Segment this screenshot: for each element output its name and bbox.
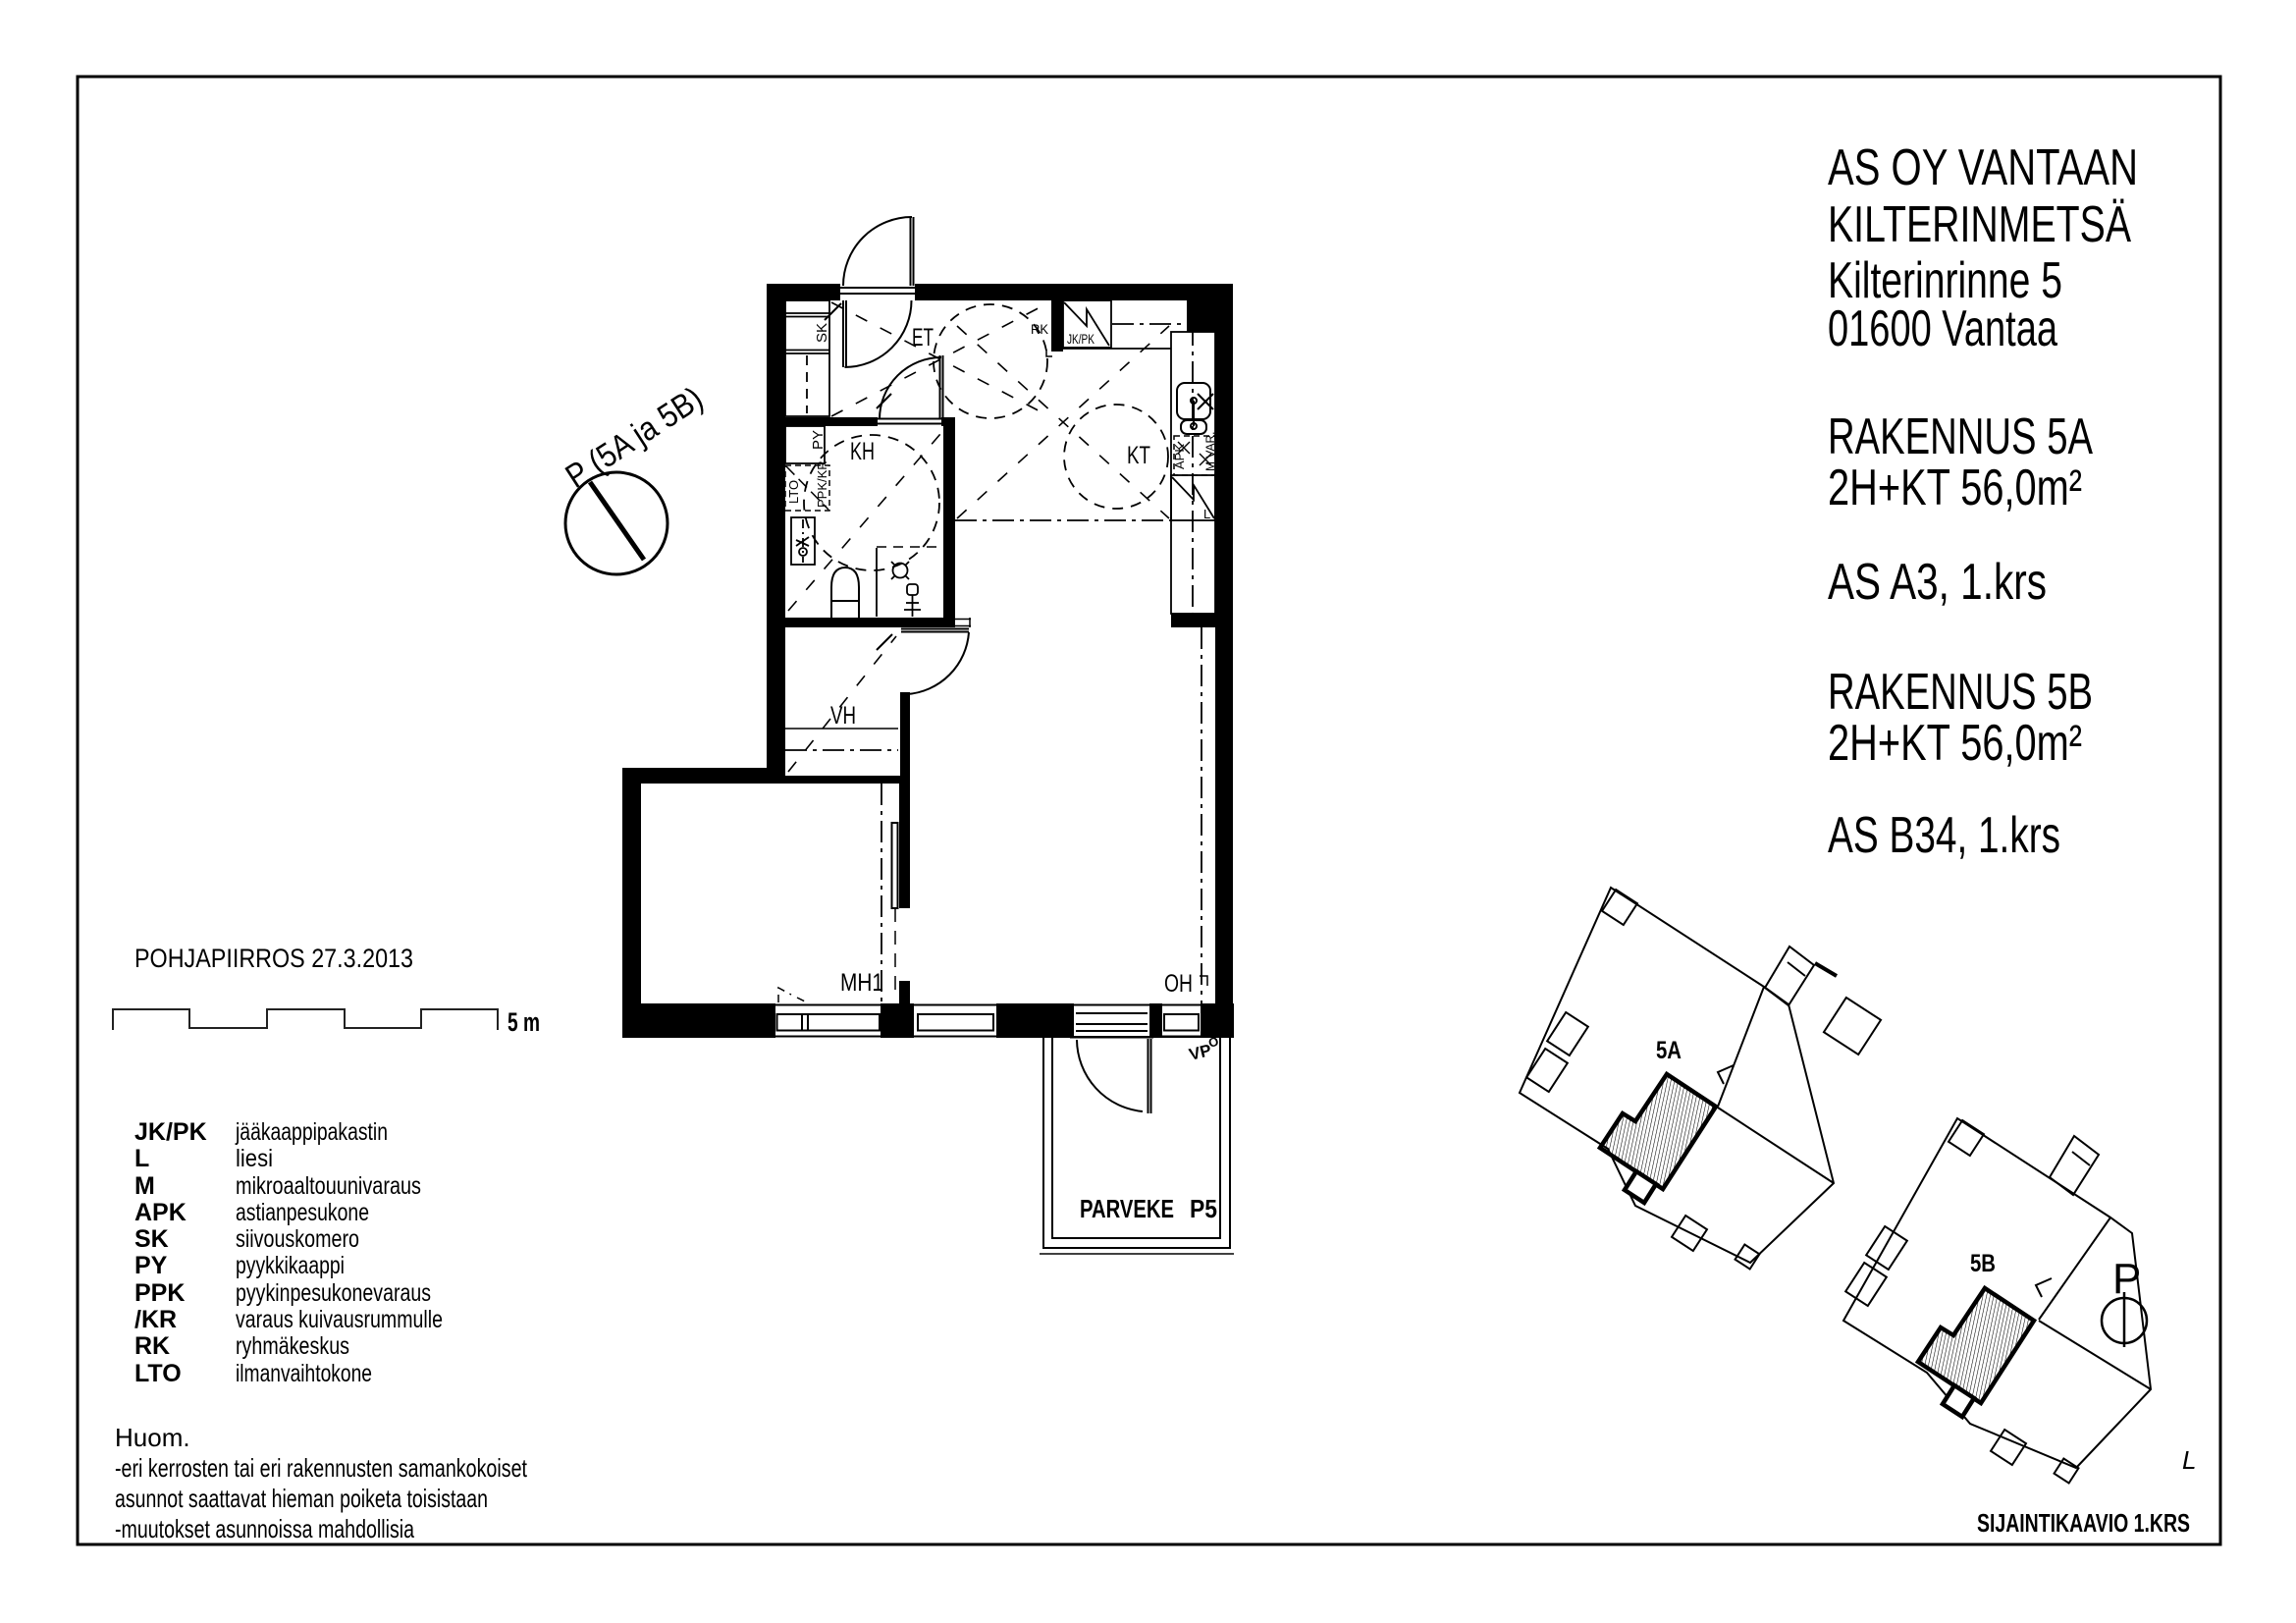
svg-text:RAKENNUS 5B: RAKENNUS 5B <box>1828 664 2093 721</box>
svg-text:VH: VH <box>830 702 856 730</box>
svg-text:-eri kerrosten tai eri rakennu: -eri kerrosten tai eri rakennusten saman… <box>115 1453 528 1483</box>
svg-text:5A: 5A <box>1656 1037 1682 1064</box>
svg-text:L: L <box>1203 507 1210 521</box>
svg-text:JK/PK: JK/PK <box>1067 331 1095 347</box>
svg-text:AS OY VANTAAN: AS OY VANTAAN <box>1828 139 2138 196</box>
svg-text:P (5A ja 5B): P (5A ja 5B) <box>560 380 710 496</box>
svg-text:LTO: LTO <box>134 1360 182 1387</box>
svg-text:asunnot saattavat hieman poike: asunnot saattavat hieman poiketa toisist… <box>115 1484 488 1513</box>
svg-text:5 m: 5 m <box>507 1007 540 1037</box>
svg-text:pyykinpesukonevaraus: pyykinpesukonevaraus <box>236 1279 431 1307</box>
svg-text:RAKENNUS 5A: RAKENNUS 5A <box>1828 408 2093 465</box>
svg-text:L: L <box>134 1145 149 1172</box>
svg-text:pyykkikaappi: pyykkikaappi <box>236 1252 345 1279</box>
svg-text:APK: APK <box>1172 444 1187 469</box>
svg-text:MH1: MH1 <box>840 969 883 997</box>
svg-text:ET: ET <box>912 324 934 352</box>
svg-text:liesi: liesi <box>236 1145 273 1172</box>
svg-text:M VAR.: M VAR. <box>1203 432 1217 471</box>
svg-text:-muutokset asunnoissa mahdolli: -muutokset asunnoissa mahdollisia <box>115 1514 414 1543</box>
svg-text:/KR: /KR <box>134 1306 177 1333</box>
svg-text:APK: APK <box>134 1199 187 1226</box>
svg-text:jääkaappipakastin: jääkaappipakastin <box>235 1118 388 1146</box>
svg-text:SK: SK <box>814 323 830 343</box>
svg-text:2H+KT 56,0m²: 2H+KT 56,0m² <box>1828 715 2082 772</box>
svg-text:siivouskomero: siivouskomero <box>236 1225 359 1253</box>
svg-text:PY: PY <box>134 1252 168 1279</box>
svg-text:KH: KH <box>850 438 875 465</box>
svg-text:PPK/KR: PPK/KR <box>815 460 829 508</box>
svg-text:AS B34, 1.krs: AS B34, 1.krs <box>1828 807 2060 864</box>
svg-text:astianpesukone: astianpesukone <box>236 1199 369 1226</box>
svg-text:SIJAINTIKAAVIO 1.KRS: SIJAINTIKAAVIO 1.KRS <box>1977 1508 2190 1538</box>
svg-text:L: L <box>2182 1445 2196 1475</box>
svg-text:M: M <box>134 1172 155 1200</box>
svg-text:ilmanvaihtokone: ilmanvaihtokone <box>236 1360 372 1387</box>
svg-text:varaus kuivausrummulle: varaus kuivausrummulle <box>236 1306 443 1333</box>
svg-text:RK: RK <box>134 1332 170 1360</box>
svg-text:AS A3, 1.krs: AS A3, 1.krs <box>1828 554 2047 611</box>
svg-text:POHJAPIIRROS 27.3.2013: POHJAPIIRROS 27.3.2013 <box>134 944 413 973</box>
svg-text:PY: PY <box>810 430 827 450</box>
svg-text:5B: 5B <box>1970 1250 1996 1277</box>
svg-text:01600 Vantaa: 01600 Vantaa <box>1828 300 2057 357</box>
svg-text:Huom.: Huom. <box>115 1423 190 1452</box>
svg-text:LTO: LTO <box>786 480 801 504</box>
svg-text:KILTERINMETSÄ: KILTERINMETSÄ <box>1828 196 2131 253</box>
svg-text:PARVEKE: PARVEKE <box>1080 1194 1174 1223</box>
svg-text:JK/PK: JK/PK <box>134 1118 207 1146</box>
svg-text:mikroaaltouunivaraus: mikroaaltouunivaraus <box>236 1172 421 1200</box>
svg-text:RK: RK <box>1031 321 1049 337</box>
svg-text:ryhmäkeskus: ryhmäkeskus <box>236 1332 349 1360</box>
svg-text:2H+KT 56,0m²: 2H+KT 56,0m² <box>1828 460 2082 516</box>
svg-text:OH: OH <box>1164 970 1193 998</box>
svg-text:P5: P5 <box>1190 1194 1217 1223</box>
svg-text:SK: SK <box>134 1225 169 1253</box>
svg-text:KT: KT <box>1127 442 1150 469</box>
svg-text:P: P <box>2112 1255 2141 1303</box>
svg-text:PPK: PPK <box>134 1279 185 1307</box>
